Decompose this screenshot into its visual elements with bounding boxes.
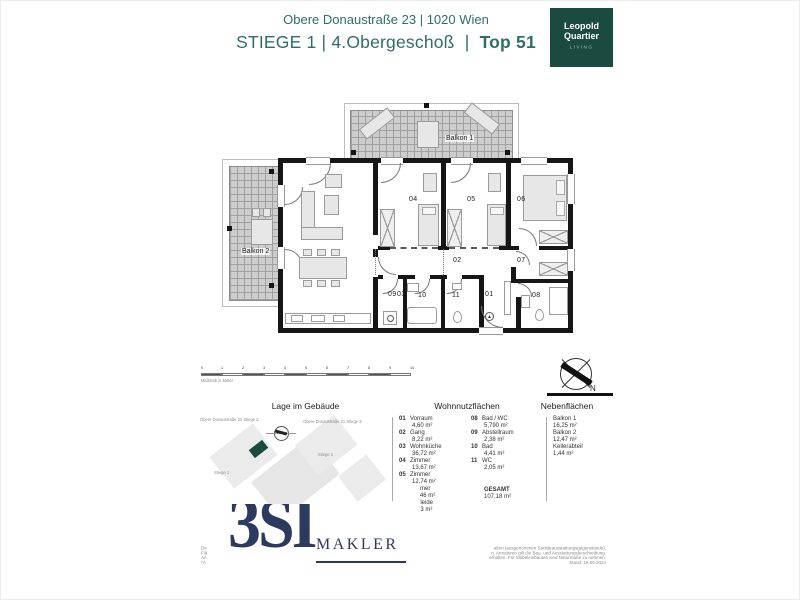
side-areas-heading: Nebenflächen (531, 401, 603, 411)
area-row: 08Bad / WC5,790 m² (471, 416, 546, 429)
window-opening (567, 174, 575, 204)
fineprint-left: De Flä An *A (201, 546, 207, 565)
balcony-chair (252, 208, 260, 217)
bathtub (407, 307, 437, 324)
balcony-table (417, 121, 439, 148)
section-divider (392, 417, 393, 501)
expose-page: Obere Donaustraße 23 | 1020 Wien STIEGE … (0, 0, 800, 600)
window-opening (521, 157, 547, 165)
wardrobe (539, 230, 568, 244)
location-heading: Lage im Gebäude (198, 401, 413, 411)
scale-label: Maßstab in Meter (201, 378, 233, 383)
window-opening (567, 249, 575, 271)
area-row: 02Gang8,22 m² (399, 430, 471, 443)
building-footprint (338, 454, 386, 501)
shower (549, 287, 568, 315)
scale-segment (222, 373, 243, 376)
title-main: STIEGE 1 | 4.Obergeschoß (236, 32, 454, 52)
wall-segment (506, 163, 511, 246)
brand-line3: LIVING (560, 45, 603, 50)
north-label: N (590, 384, 596, 393)
area-row: Balkon 212,47 m² (553, 430, 608, 443)
room-label-11: 11 (452, 292, 460, 299)
armchair (324, 195, 339, 215)
toilet (453, 311, 462, 323)
balcony-post (269, 283, 274, 288)
balcony-door-opening (277, 185, 285, 207)
broker-logo-rule (316, 561, 406, 563)
brand-line1: Leopold (550, 21, 613, 31)
bed (418, 204, 439, 246)
area-row: 11WC2,05 m² (471, 458, 546, 471)
chair (303, 249, 312, 256)
room-label-02: 02 (453, 257, 462, 264)
area-row: 09Abstellraum2,38 m² (471, 430, 546, 443)
scale-segment (264, 373, 285, 376)
room-label-01: 01 (485, 291, 494, 298)
desk (423, 173, 437, 192)
scale-segment (348, 373, 369, 376)
area-row: 03Wohnküche36,72 m² (399, 444, 471, 457)
room-label-07: 07 (517, 257, 526, 264)
scale-tick: 0 (201, 366, 203, 370)
balcony-post (424, 103, 429, 108)
pillow (556, 180, 565, 195)
chair (317, 280, 326, 287)
area-row: Balkon 116,25 m² (553, 416, 608, 429)
projection-line (443, 249, 444, 275)
area-row: 01Vorraum4,60 m² (399, 416, 471, 429)
kitchen-stove (311, 315, 325, 322)
ceiling-opening-line (390, 247, 438, 249)
washbasin (452, 283, 462, 290)
compass: N (557, 355, 617, 401)
scale-bar: 0 1 2 3 4 5 6 7 8 9 10 Maßstab in Meter (201, 367, 419, 387)
page-title: STIEGE 1 | 4.Obergeschoß | Top 51 (1, 32, 771, 53)
balcony-chair (263, 208, 271, 217)
broker-logo-makler: MAKLER (316, 536, 399, 554)
balcony1-label: Balkon 1 (445, 135, 474, 142)
living-areas-heading: Wohnnutzflächen (407, 401, 527, 411)
fineprint-right: alten (ausgenommen Sanitärausstattungsge… (426, 546, 606, 565)
washer-drum (387, 315, 394, 322)
room-label-04: 04 (409, 196, 418, 203)
scale-segment (327, 373, 348, 376)
scale-tick: 10 (410, 366, 414, 370)
scale-tick: 1 (221, 366, 223, 370)
balcony-door-opening (277, 247, 285, 269)
balcony-post (269, 169, 274, 174)
wall-segment (479, 275, 484, 328)
balcony2-label: Balkon 2 (241, 248, 270, 255)
washing-machine (383, 311, 397, 325)
living-areas-col-b: 08Bad / WC5,790 m² 09Abstellraum2,38 m² … (471, 416, 546, 500)
sofa (301, 227, 343, 240)
room-label-06: 06 (517, 196, 526, 203)
kitchen-appliance (333, 315, 345, 322)
address-line: Obere Donaustraße 23 | 1020 Wien (1, 12, 771, 27)
scale-segment (201, 373, 222, 376)
scale-tick: 3 (263, 366, 265, 370)
entry-marker: ▲ (485, 312, 494, 321)
projection-line (375, 249, 376, 275)
area-row: 05Zimmer12,74 m² (399, 472, 471, 485)
wall-segment (511, 246, 519, 250)
desk (488, 173, 501, 192)
bed (487, 204, 506, 246)
wardrobe (380, 209, 395, 247)
site-plan: Obere Donaustraße 23 Stiege 2 Obere Dona… (198, 414, 390, 504)
wall-segment (539, 246, 568, 250)
washbasin (521, 295, 530, 308)
chair (331, 280, 340, 287)
compass-rule (547, 393, 613, 396)
scale-segment (243, 373, 264, 376)
balcony-post (505, 150, 510, 155)
total-value: 107,18 m² (471, 494, 546, 501)
siteplan-label-ne: Obere Donaustraße 21 Stiege 3 (303, 419, 361, 424)
balcony-post (227, 226, 232, 231)
wall-segment (441, 279, 445, 328)
leopold-quartier-logo: Leopold Quartier LIVING (550, 8, 613, 67)
area-row: 04Zimmer13,67 m² (399, 458, 471, 471)
scale-tick: 6 (326, 366, 328, 370)
chair (303, 280, 312, 287)
wall-segment (373, 163, 378, 235)
wall-segment (441, 163, 446, 246)
washbasin (407, 283, 419, 292)
armchair (325, 174, 342, 188)
wall-segment (516, 279, 573, 283)
wall-segment (499, 246, 511, 250)
scale-tick: 7 (347, 366, 349, 370)
entrance-opening (479, 327, 503, 335)
floor-plan: Balkon 1 Balkon 2 (221, 99, 593, 347)
kitchen-sink (291, 315, 303, 322)
dining-table (299, 257, 347, 279)
room-label-10: 10 (418, 292, 427, 299)
room-label-08: 08 (532, 292, 541, 299)
title-separator: | (465, 32, 470, 52)
cabinet (504, 281, 511, 315)
pillow (556, 201, 565, 216)
scale-segment (369, 373, 390, 376)
siteplan-label-stiege1-left: Stiege 1 (214, 470, 229, 475)
side-areas-list: Balkon 116,25 m² Balkon 212,47 m² Keller… (553, 416, 608, 458)
pillow (490, 207, 504, 215)
wall-segment (430, 275, 447, 279)
scale-segment (390, 373, 411, 376)
area-row: 10Bad4,41 m² (471, 444, 546, 457)
brand-line2: Quartier (550, 31, 613, 41)
scale-tick: 8 (368, 366, 370, 370)
balcony-table (251, 219, 273, 245)
scale-tick: 2 (242, 366, 244, 370)
scale-tick: 4 (284, 366, 286, 370)
siteplan-label-nw: Obere Donaustraße 23 Stiege 2 (200, 417, 258, 422)
wall-segment (462, 275, 481, 279)
ceiling-opening-line (449, 247, 499, 249)
pillow (422, 207, 436, 215)
double-bed (523, 175, 567, 221)
chair (331, 249, 340, 256)
wall-segment (373, 277, 378, 328)
wardrobe (539, 262, 568, 276)
scale-segment (285, 373, 306, 376)
area-row: Kellerabteil1,44 m² (553, 444, 608, 457)
scale-tick: 9 (389, 366, 391, 370)
room-label-09: 09 (388, 291, 397, 298)
section-divider (546, 417, 547, 501)
wardrobe (447, 209, 462, 247)
wall-segment (398, 275, 415, 279)
room-label-05: 05 (467, 196, 476, 203)
scale-tick: 5 (305, 366, 307, 370)
toilet (535, 309, 544, 321)
room-label-03: 03 (397, 291, 406, 298)
title-unit: Top 51 (480, 32, 536, 52)
chair (317, 249, 326, 256)
balcony-post (351, 150, 356, 155)
scale-segment (306, 373, 327, 376)
siteplan-label-stiege1-right: Stiege 1 (318, 452, 333, 457)
